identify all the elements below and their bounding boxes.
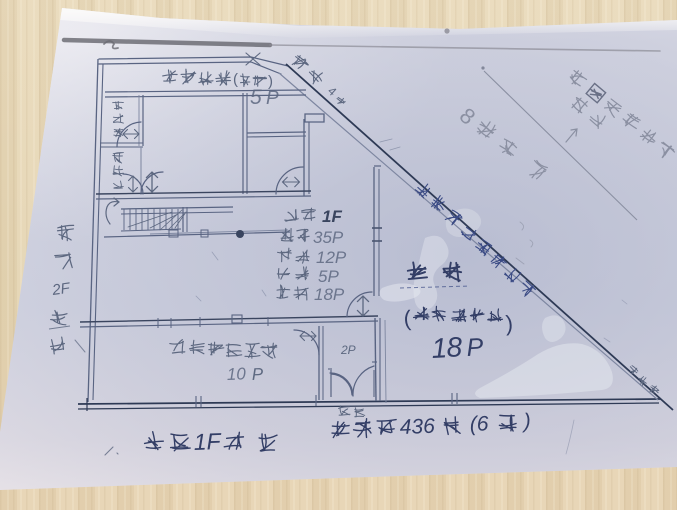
svg-text:436: 436: [399, 415, 435, 439]
svg-text:12P: 12P: [316, 248, 347, 267]
svg-text:): ): [505, 311, 514, 336]
svg-text:(: (: [403, 306, 412, 331]
svg-text:P: P: [466, 333, 484, 362]
svg-text:2P: 2P: [340, 343, 356, 357]
svg-text:2F: 2F: [50, 280, 72, 300]
svg-text:8: 8: [455, 103, 480, 130]
svg-text:P: P: [251, 365, 264, 384]
svg-text:(6: (6: [469, 412, 489, 436]
svg-text:35P: 35P: [313, 228, 344, 247]
svg-text:1F: 1F: [322, 207, 342, 226]
svg-text:5P: 5P: [318, 267, 339, 286]
svg-text:10: 10: [226, 364, 246, 384]
svg-text:5: 5: [250, 86, 262, 109]
svg-text:4: 4: [325, 84, 340, 99]
svg-text:(: (: [233, 71, 238, 88]
svg-text:8: 8: [446, 331, 464, 363]
svg-text:18P: 18P: [314, 285, 345, 304]
svg-text:1F: 1F: [193, 428, 223, 455]
svg-text:P: P: [266, 88, 279, 109]
svg-text:): ): [520, 410, 531, 433]
